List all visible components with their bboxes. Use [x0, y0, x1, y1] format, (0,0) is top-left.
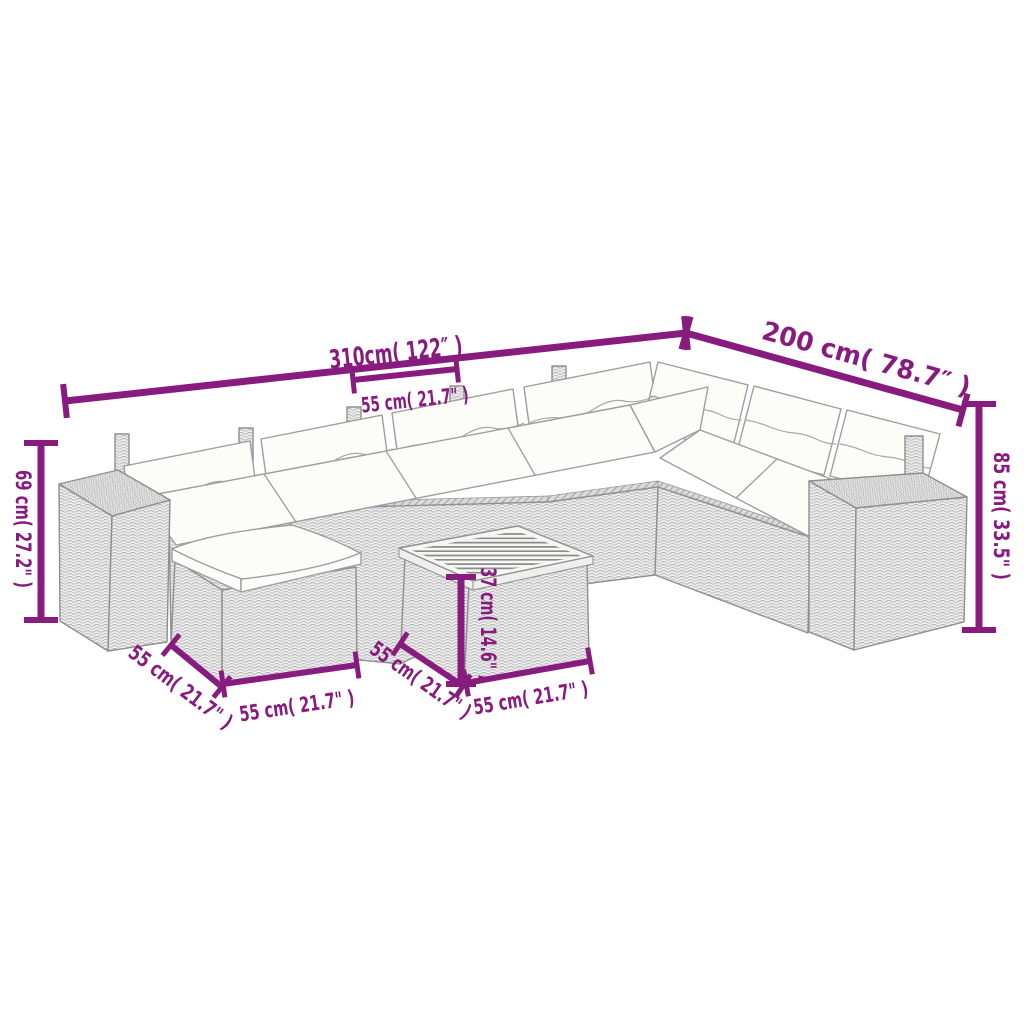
- dimension-label-backrest-height: 85 cm( 33.5" ): [989, 452, 1013, 580]
- product-dimension-diagram: 310cm( 122″ )55 cm( 21.7" )200 cm( 78.7″…: [0, 0, 1024, 1024]
- dimension-label-table-height: 37 cm( 14.6" ): [476, 568, 500, 681]
- dimension-armrest-height: 69 cm( 27.2" ): [11, 443, 58, 620]
- furniture-diagram-canvas: 310cm( 122″ )55 cm( 21.7" )200 cm( 78.7″…: [0, 0, 1024, 1024]
- dimension-label-table-width: 55 cm( 21.7" ): [472, 677, 590, 720]
- dimension-label-ottoman-width: 55 cm( 21.7" ): [238, 686, 356, 727]
- ottoman: [171, 525, 361, 684]
- left-armrest: [59, 470, 170, 651]
- dimension-backrest-height: 85 cm( 33.5" ): [962, 404, 1013, 630]
- left-armrest-side: [108, 500, 170, 651]
- dimension-label-armrest-height: 69 cm( 27.2" ): [11, 470, 35, 588]
- right-armrest-side: [854, 497, 967, 650]
- right-armrest-front: [809, 481, 856, 650]
